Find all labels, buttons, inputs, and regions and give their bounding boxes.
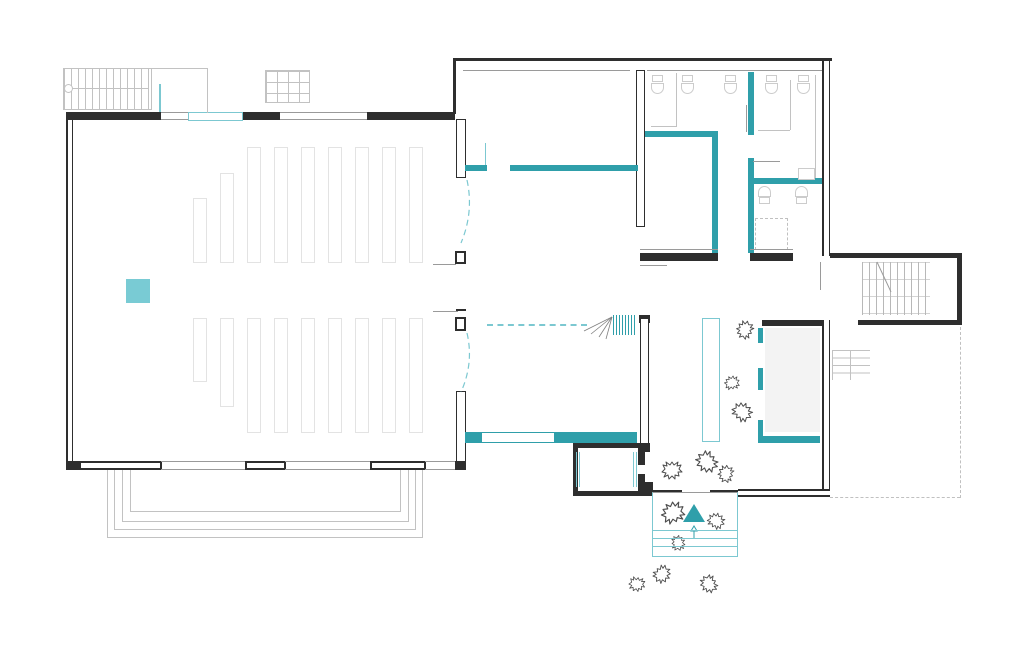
- small-stair-grid: [265, 70, 310, 103]
- wing-right-wall: [822, 61, 830, 256]
- stair-start-circle: [64, 84, 73, 93]
- partition-line: [753, 161, 780, 162]
- wc-partition: [790, 80, 791, 130]
- terrace-step: [130, 470, 401, 512]
- corridor-wall: [640, 253, 718, 261]
- toilet-tank: [796, 197, 807, 204]
- teal-sliding-wall-segment: [758, 368, 763, 390]
- vestibule-wall: [573, 491, 645, 496]
- bush: [628, 576, 646, 592]
- pew-row: [409, 318, 423, 433]
- hall-bottom-wall-thin: [425, 461, 457, 470]
- hall-bottom-wall-thin: [285, 461, 371, 470]
- bush: [662, 462, 682, 479]
- corridor-wall-line: [640, 249, 718, 250]
- wc-partition: [758, 130, 790, 131]
- bush: [692, 448, 720, 477]
- teal-wall: [712, 137, 718, 253]
- canopy-dashed-line: [960, 327, 961, 498]
- vestibule-wall: [638, 443, 645, 465]
- wing-top-wall: [453, 58, 832, 61]
- teal-sliding-wall-segment: [758, 328, 763, 343]
- column: [455, 251, 466, 264]
- wc-partition: [676, 73, 677, 126]
- hall-bottom-wall-thin: [161, 461, 246, 470]
- exterior-stair: [63, 68, 152, 110]
- pew-row: [301, 147, 315, 263]
- stairwell-bottom-wall: [858, 320, 962, 325]
- toilet-bowl: [724, 83, 737, 94]
- teal-wall: [465, 165, 487, 171]
- glass-door-line: [576, 452, 577, 487]
- teal-wall: [763, 436, 820, 443]
- step-divider: [850, 350, 851, 380]
- bush: [723, 375, 740, 390]
- pew-row: [193, 318, 207, 382]
- pew-row: [274, 147, 288, 263]
- entrance-porch: [652, 492, 738, 557]
- porch-step-line: [653, 546, 737, 547]
- toilet-bowl: [765, 83, 778, 94]
- floor-edge-line: [433, 264, 456, 265]
- stage-floor: [765, 328, 820, 432]
- porch-edge-tick: [710, 490, 738, 492]
- pew-row: [328, 318, 342, 433]
- floor-edge-line: [433, 311, 458, 312]
- pew-row: [193, 198, 207, 263]
- teal-wall: [748, 72, 754, 135]
- canopy-dashed-line: [830, 497, 960, 498]
- hall-bottom-window: [79, 461, 162, 470]
- bush: [698, 573, 720, 596]
- column: [455, 317, 466, 331]
- toilet-tank: [652, 75, 663, 82]
- floor-plan-canvas: [0, 0, 1024, 647]
- toilet-tank: [725, 75, 736, 82]
- pew-row: [328, 147, 342, 263]
- teal-bench: [555, 432, 637, 443]
- bush: [716, 464, 735, 484]
- pew-row: [382, 147, 396, 263]
- wing-top-wall-inner: [463, 70, 630, 71]
- toilet-tank: [682, 75, 693, 82]
- toilet-bowl: [758, 186, 771, 197]
- downpipe-line: [159, 84, 161, 112]
- lobby-right-wall: [640, 318, 649, 451]
- porch-edge-tick: [652, 490, 682, 492]
- glass-door-line: [636, 452, 637, 487]
- bush: [734, 318, 756, 341]
- hall-bottom-window: [370, 461, 426, 470]
- door-swing-arc: [461, 180, 469, 243]
- corridor-wall-line: [750, 249, 793, 250]
- door-jamb-line: [485, 143, 486, 166]
- porch-step-line: [653, 538, 737, 539]
- glass-door-line: [579, 452, 580, 487]
- toilet-tank: [759, 197, 770, 204]
- room-right-wall: [822, 320, 830, 490]
- toilet-bowl: [797, 83, 810, 94]
- teal-bench: [465, 432, 481, 443]
- toilet-tank: [766, 75, 777, 82]
- toilet-tank: [798, 75, 809, 82]
- stair-center-line: [67, 88, 148, 89]
- corridor-wall-line: [640, 265, 667, 266]
- folding-partition-dashed: [487, 324, 587, 326]
- hall-top-wall: [243, 112, 280, 120]
- hall-top-wall-thin: [280, 112, 367, 120]
- sink: [798, 168, 815, 180]
- hall-right-wall-lower: [456, 391, 466, 462]
- bush: [729, 399, 755, 425]
- hall-bottom-wall: [455, 461, 466, 470]
- folding-partition-stack: [613, 315, 637, 335]
- bush: [650, 563, 674, 586]
- room-divider-wall: [636, 70, 645, 227]
- hall-top-wall: [66, 112, 161, 120]
- toilet-bowl: [795, 186, 808, 197]
- teal-wall: [510, 165, 638, 171]
- hall-left-wall: [66, 115, 73, 470]
- pew-row: [247, 147, 261, 263]
- pew-row: [247, 318, 261, 433]
- room-top-wall: [762, 320, 830, 326]
- door-swing-arc: [461, 333, 469, 392]
- stairwell-right-wall: [957, 253, 962, 325]
- teal-wall: [645, 131, 718, 137]
- hall-top-window: [188, 112, 243, 121]
- porch-step-line: [653, 530, 737, 531]
- teal-square-element: [126, 279, 150, 303]
- door-jamb-line: [820, 262, 821, 290]
- wc-partition: [815, 75, 816, 178]
- vestibule-wall: [573, 443, 640, 448]
- exterior-steps: [832, 350, 870, 380]
- pew-row: [355, 147, 369, 263]
- pew-row: [301, 318, 315, 433]
- teal-outlined-bench: [702, 318, 720, 442]
- stair-treads: [862, 262, 930, 315]
- wc-partition: [651, 126, 677, 127]
- glass-door-line: [633, 452, 634, 487]
- canopy-line: [152, 68, 208, 69]
- pew-row: [220, 173, 234, 263]
- partition-line: [746, 105, 747, 132]
- corridor-wall: [750, 253, 793, 261]
- hall-bottom-wall: [66, 461, 80, 470]
- vestibule-wall: [638, 474, 645, 496]
- wall-jog: [453, 58, 456, 114]
- folding-door-fan: [584, 317, 612, 339]
- hall-bottom-window: [245, 461, 286, 470]
- toilet-bowl: [651, 83, 664, 94]
- pew-row: [355, 318, 369, 433]
- pew-row: [274, 318, 288, 433]
- room-bottom-wall: [738, 489, 830, 497]
- pew-row: [220, 318, 234, 407]
- wing-top-wall-inner: [647, 70, 822, 71]
- toilet-bowl: [681, 83, 694, 94]
- canopy-line: [207, 68, 208, 113]
- stairwell-top-wall: [830, 253, 962, 258]
- hall-top-wall-thin: [161, 112, 188, 120]
- teal-bench-outlined: [481, 432, 555, 443]
- pew-row: [409, 147, 423, 263]
- dashed-fixture-outline: [755, 218, 788, 250]
- teal-wall: [748, 158, 754, 253]
- hall-top-wall: [367, 112, 455, 120]
- pew-row: [382, 318, 396, 433]
